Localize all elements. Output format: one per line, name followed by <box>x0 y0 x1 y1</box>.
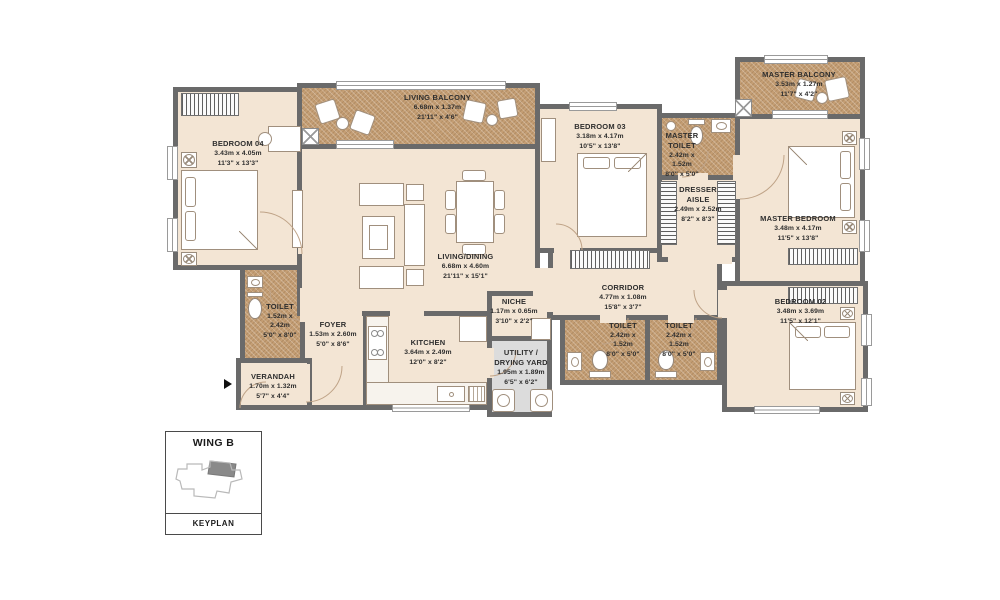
bed-icon <box>789 322 856 390</box>
window <box>754 406 820 414</box>
pillow-icon <box>840 183 851 211</box>
room-dim-ft: 21'11" x 4'6" <box>375 114 500 123</box>
room-label-niche: NICHE 1.17m x 0.65m 3'10" x 2'2" <box>488 297 540 327</box>
room-dim-m: 3.48m x 4.17m <box>744 225 852 234</box>
room-dim-m: 1.52m x 2.42m <box>258 313 302 331</box>
opening <box>668 246 732 264</box>
room-name: LIVING/DINING <box>398 252 533 262</box>
room-dim-m: 2.42m x 1.52m <box>660 152 704 170</box>
keyplan: WING B KEYPLAN <box>165 431 262 535</box>
wc-tank <box>589 371 611 378</box>
room-name: TOILET <box>656 321 702 331</box>
room-name: TOILET <box>258 302 302 312</box>
room-label-corridor: CORRIDOR 4.77m x 1.08m 15'8" x 3'7" <box>573 283 673 313</box>
basin-icon <box>711 119 731 133</box>
wm-drum <box>535 394 548 407</box>
wc-tank <box>655 371 677 378</box>
room-dim-ft: 8'0" x 5'0" <box>660 171 704 180</box>
room-label-foyer: FOYER 1.53m x 2.60m 5'0" x 8'6" <box>306 320 360 350</box>
window <box>167 218 178 252</box>
room-dim-m: 3.53m x 1.27m <box>743 81 855 90</box>
keyplan-caption: KEYPLAN <box>166 513 261 534</box>
room-dim-ft: 8'0" x 5'0" <box>600 351 646 360</box>
column-icon <box>302 128 319 145</box>
room-name: DRESSER AISLE <box>667 185 729 205</box>
room-dim-m: 1.17m x 0.65m <box>488 308 540 317</box>
room-dim-ft: 21'11" x 15'1" <box>398 273 533 282</box>
room-dim-m: 1.70m x 1.32m <box>238 383 308 392</box>
pillow-icon <box>840 151 851 179</box>
dining-chair-icon <box>494 190 505 210</box>
opening <box>390 309 424 318</box>
room-label-master-toilet: MASTER TOILET 2.42m x 1.52m 8'0" x 5'0" <box>660 131 704 180</box>
basin-icon <box>247 276 263 288</box>
pillow-icon <box>824 326 850 338</box>
entry-arrow-icon <box>224 379 232 389</box>
basin-bowl <box>571 357 579 367</box>
bed-fold <box>239 231 257 249</box>
window <box>569 102 617 111</box>
opening <box>718 290 730 318</box>
room-dim-ft: 11'3" x 13'3" <box>178 160 298 169</box>
room-name: TOILET <box>600 321 646 331</box>
room-dim-m: 6.68m x 4.60m <box>398 263 533 272</box>
side-table-icon <box>842 131 857 145</box>
column-icon <box>735 99 752 117</box>
room-label-dresser-aisle: DRESSER AISLE 2.49m x 2.52m 8'2" x 8'3" <box>667 185 729 225</box>
dining-chair-icon <box>494 214 505 234</box>
room-dim-m: 2.42m x 1.52m <box>656 332 702 350</box>
stove-icon <box>368 326 387 360</box>
room-dim-m: 3.64m x 2.49m <box>386 349 470 358</box>
wm-drum <box>497 394 510 407</box>
room-label-master-balcony: MASTER BALCONY 3.53m x 1.27m 11'7" x 4'2… <box>743 70 855 100</box>
room-dim-m: 1.53m x 2.60m <box>306 331 360 340</box>
pillow-icon <box>185 211 196 241</box>
wardrobe-icon <box>570 250 650 269</box>
basin-bowl <box>251 279 260 286</box>
room-dim-m: 6.68m x 1.37m <box>375 104 500 113</box>
room-dim-ft: 3'10" x 2'2" <box>488 318 540 327</box>
sliding-door <box>772 110 828 119</box>
wc-tank <box>247 292 263 297</box>
room-label-living-dining: LIVING/DINING 6.68m x 4.60m 21'11" x 15'… <box>398 252 533 282</box>
side-table-icon <box>840 392 855 405</box>
basin-bowl <box>716 122 727 130</box>
drainboard-icon <box>468 386 485 402</box>
tv-unit-icon <box>292 190 303 248</box>
dining-chair-icon <box>462 170 486 181</box>
room-name: LIVING BALCONY <box>375 93 500 103</box>
sink-drain <box>449 392 454 397</box>
room-label-kitchen: KITCHEN 3.64m x 2.49m 12'0" x 8'2" <box>386 338 470 368</box>
wardrobe-icon <box>788 248 858 265</box>
bed-fold <box>628 154 646 172</box>
bed-fold <box>789 147 807 165</box>
room-label-living-balcony: LIVING BALCONY 6.68m x 1.37m 21'11" x 4'… <box>375 93 500 123</box>
dining-table-icon <box>456 181 494 243</box>
sink-icon <box>437 386 465 402</box>
room-name: BEDROOM 02 <box>748 297 853 307</box>
room-label-bedroom-04: BEDROOM 04 3.43m x 4.05m 11'3" x 13'3" <box>178 139 298 169</box>
window <box>861 378 872 406</box>
window-sill-icon <box>181 93 239 116</box>
room-dim-ft: 11'5" x 13'8" <box>744 235 852 244</box>
room-name: VERANDAH <box>238 372 308 382</box>
room-name: BEDROOM 04 <box>178 139 298 149</box>
room-dim-m: 3.18m x 4.17m <box>545 133 655 142</box>
pillow-icon <box>185 177 196 207</box>
dining-chair-icon <box>445 190 456 210</box>
window <box>764 55 828 64</box>
room-label-verandah: VERANDAH 1.70m x 1.32m 5'7" x 4'4" <box>238 372 308 402</box>
keyplan-building-outline <box>172 454 256 506</box>
room-label-bedroom-02: BEDROOM 02 3.48m x 3.69m 11'5" x 12'1" <box>748 297 853 327</box>
room-label-toilet-bed04: TOILET 1.52m x 2.42m 5'0" x 8'0" <box>258 302 302 341</box>
coffee-table-icon <box>362 216 395 259</box>
window <box>392 404 470 412</box>
room-name: CORRIDOR <box>573 283 673 293</box>
window <box>859 220 870 252</box>
room-dim-ft: 11'5" x 12'1" <box>748 318 853 327</box>
room-name: KITCHEN <box>386 338 470 348</box>
room-dim-m: 4.77m x 1.08m <box>573 294 673 303</box>
room-name: NICHE <box>488 297 540 307</box>
window <box>861 314 872 346</box>
room-dim-ft: 12'0" x 8'2" <box>386 359 470 368</box>
room-dim-ft: 5'0" x 8'6" <box>306 341 360 350</box>
bed-icon <box>788 146 855 218</box>
dining-chair-icon <box>445 214 456 234</box>
room-dim-ft: 8'2" x 8'3" <box>667 216 729 225</box>
room-dim-ft: 5'0" x 8'0" <box>258 332 302 341</box>
room-name: MASTER BALCONY <box>743 70 855 80</box>
bed-icon <box>181 170 258 250</box>
wc-tank <box>688 119 705 125</box>
room-dim-m: 2.49m x 2.52m <box>667 206 729 215</box>
bed-icon <box>577 153 647 237</box>
window <box>859 138 870 170</box>
room-name: UTILITY / DRYING YARD <box>490 348 552 368</box>
side-table-icon <box>406 184 424 201</box>
table-icon <box>336 117 349 130</box>
room-dim-ft: 10'5" x 13'8" <box>545 143 655 152</box>
keyplan-title: WING B <box>166 437 261 449</box>
room-name: MASTER TOILET <box>660 131 704 151</box>
basin-icon <box>700 352 715 371</box>
opening <box>306 306 362 318</box>
washing-machine-icon <box>492 389 515 412</box>
room-label-toilet-corridor-2: TOILET 2.42m x 1.52m 8'0" x 5'0" <box>656 321 702 360</box>
basin-bowl <box>704 357 712 367</box>
floor-plan-canvas: BEDROOM 04 3.43m x 4.05m 11'3" x 13'3" L… <box>0 0 1000 600</box>
coffee-table-inner <box>369 225 388 250</box>
room-dim-ft: 11'7" x 4'2" <box>743 91 855 100</box>
room-dim-m: 3.43m x 4.05m <box>178 150 298 159</box>
room-label-bedroom-03: BEDROOM 03 3.18m x 4.17m 10'5" x 13'8" <box>545 122 655 152</box>
sofa-icon <box>359 183 404 206</box>
shower-icon <box>666 121 676 131</box>
room-dim-m: 2.42m x 1.52m <box>600 332 646 350</box>
room-label-toilet-corridor-1: TOILET 2.42m x 1.52m 8'0" x 5'0" <box>600 321 646 360</box>
room-dim-m: 1.95m x 1.89m <box>490 369 552 378</box>
room-label-master-bedroom: MASTER BEDROOM 3.48m x 4.17m 11'5" x 13'… <box>744 214 852 244</box>
basin-icon <box>567 352 582 371</box>
room-dim-ft: 8'0" x 5'0" <box>656 351 702 360</box>
window <box>336 81 506 90</box>
room-name: BEDROOM 03 <box>545 122 655 132</box>
pillow-icon <box>583 157 610 169</box>
room-name: MASTER BEDROOM <box>744 214 852 224</box>
room-name: FOYER <box>306 320 360 330</box>
room-dim-ft: 6'5" x 6'2" <box>490 379 552 388</box>
window <box>167 146 178 180</box>
room-label-utility: UTILITY / DRYING YARD 1.95m x 1.89m 6'5"… <box>490 348 552 388</box>
room-dim-ft: 5'7" x 4'4" <box>238 393 308 402</box>
sliding-door <box>336 140 394 149</box>
room-dim-m: 3.48m x 3.69m <box>748 308 853 317</box>
washing-machine-icon <box>530 389 553 412</box>
room-dim-ft: 15'8" x 3'7" <box>573 304 673 313</box>
side-table-icon <box>181 252 197 266</box>
